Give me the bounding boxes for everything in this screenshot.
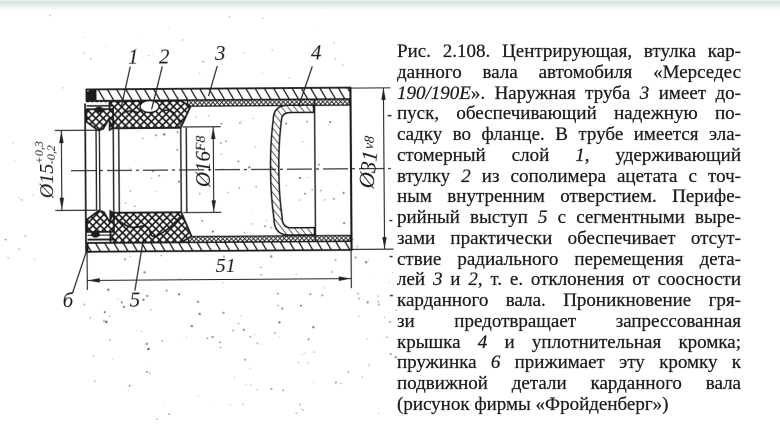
svg-text:Ø16: Ø16 [191, 150, 215, 188]
svg-text:51: 51 [216, 255, 236, 277]
svg-text:F8: F8 [194, 136, 209, 153]
svg-text:-0,2: -0,2 [44, 145, 58, 164]
svg-text:Ø31: Ø31 [353, 149, 382, 191]
svg-text:5: 5 [130, 288, 141, 312]
svg-text:3: 3 [214, 41, 226, 65]
svg-text:Ø15: Ø15 [36, 164, 58, 200]
svg-text:б: б [63, 288, 75, 312]
svg-text:2: 2 [159, 44, 170, 68]
svg-text:v8: v8 [362, 135, 378, 150]
svg-text:1: 1 [128, 45, 139, 69]
